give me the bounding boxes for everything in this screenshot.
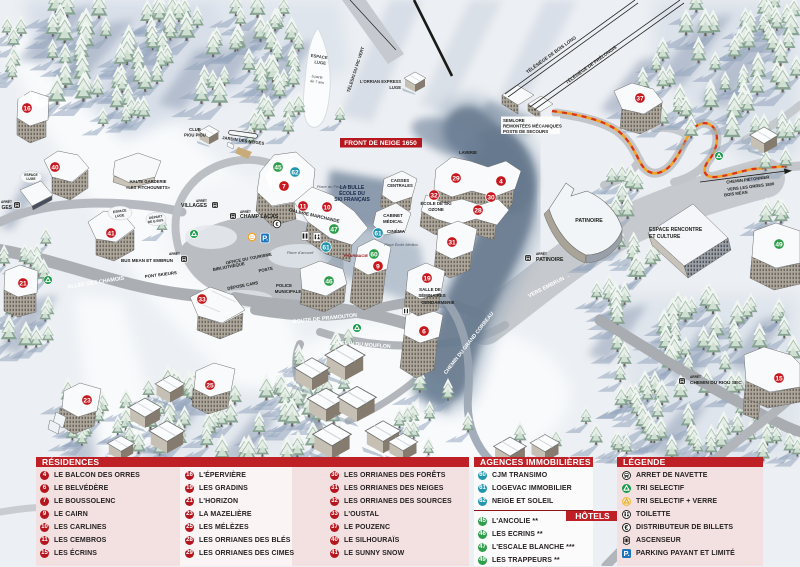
svg-text:MÉDICAL: MÉDICAL [383, 219, 403, 224]
svg-text:37: 37 [636, 95, 644, 102]
svg-text:HALTE GARDERIE: HALTE GARDERIE [130, 179, 167, 184]
svg-text:45: 45 [274, 164, 282, 171]
svg-text:30: 30 [487, 194, 495, 201]
svg-text:33: 33 [198, 296, 206, 303]
svg-text:62: 62 [291, 169, 299, 176]
svg-text:P.: P. [624, 549, 630, 558]
svg-text:€: € [276, 222, 279, 228]
svg-text:31: 31 [448, 239, 456, 246]
svg-text:REMONTÉES MÉCANIQUES: REMONTÉES MÉCANIQUES [503, 124, 562, 129]
svg-text:49: 49 [775, 241, 783, 248]
svg-text:21: 21 [19, 280, 27, 287]
svg-text:29: 29 [452, 175, 460, 182]
svg-text:23: 23 [83, 397, 91, 404]
svg-text:GES: GES [1, 205, 12, 211]
svg-text:60: 60 [370, 251, 378, 258]
svg-text:ARRÊT: ARRÊT [536, 251, 547, 256]
svg-text:25: 25 [206, 382, 214, 389]
svg-text:ESPACE RENCONTRE: ESPACE RENCONTRE [649, 227, 703, 233]
svg-text:CHAMP LACAS: CHAMP LACAS [240, 214, 279, 220]
svg-text:LUGE: LUGE [389, 85, 401, 90]
svg-text:SALLE DE: SALLE DE [419, 287, 441, 292]
svg-text:CHEMIN DU RIOU SEC: CHEMIN DU RIOU SEC [690, 380, 742, 386]
svg-text:15: 15 [775, 375, 783, 382]
svg-text:Place du Festival: Place du Festival [317, 184, 348, 189]
svg-text:PHARMACIE: PHARMACIE [344, 253, 369, 258]
svg-text:ARRÊT: ARRÊT [1, 199, 12, 204]
svg-text:19: 19 [423, 275, 431, 282]
svg-text:L'ORRIAN EXPRESS: L'ORRIAN EXPRESS [360, 79, 401, 84]
svg-text:€: € [625, 525, 629, 532]
svg-text:POLICE: POLICE [276, 283, 292, 288]
svg-text:BUS MEAN ET EMBRUN: BUS MEAN ET EMBRUN [121, 258, 173, 263]
svg-text:61: 61 [374, 230, 382, 237]
svg-text:VILLAGES: VILLAGES [181, 203, 207, 209]
svg-text:PATINOIRE: PATINOIRE [575, 218, 603, 224]
svg-text:PIOU PIOU: PIOU PIOU [184, 133, 206, 138]
svg-text:«LES PITCHOUNETS»: «LES PITCHOUNETS» [126, 185, 171, 190]
svg-text:CINÉMA: CINÉMA [387, 227, 406, 234]
svg-text:7: 7 [282, 183, 286, 190]
svg-text:47: 47 [330, 226, 338, 233]
svg-text:40: 40 [51, 164, 59, 171]
svg-text:41: 41 [107, 230, 115, 237]
svg-text:CENTRALES: CENTRALES [387, 183, 413, 188]
svg-text:MUNICIPALE: MUNICIPALE [275, 289, 302, 294]
svg-text:FRONT DE NEIGE 1650: FRONT DE NEIGE 1650 [344, 140, 417, 147]
svg-text:SKI FRANÇAIS: SKI FRANÇAIS [334, 197, 370, 203]
svg-text:ÉCOLE DU: ÉCOLE DU [339, 189, 365, 197]
svg-text:6: 6 [422, 328, 426, 335]
svg-text:CLUB: CLUB [189, 127, 201, 132]
svg-text:28: 28 [474, 207, 482, 214]
svg-text:10: 10 [323, 204, 331, 211]
svg-text:P.: P. [262, 234, 268, 243]
svg-text:46: 46 [325, 278, 333, 285]
svg-text:SÉMINAIRES: SÉMINAIRES [418, 293, 445, 298]
svg-text:ARRÊT: ARRÊT [690, 374, 701, 379]
svg-text:CABINET: CABINET [383, 213, 403, 218]
svg-text:ET CULTURE: ET CULTURE [649, 234, 681, 240]
svg-text:PATINOIRE: PATINOIRE [536, 257, 564, 263]
svg-text:LUGE: LUGE [26, 177, 36, 181]
svg-text:Place Émile Mediou: Place Émile Mediou [384, 242, 418, 247]
svg-text:POSTE DE SECOURS: POSTE DE SECOURS [503, 129, 548, 134]
svg-text:16: 16 [23, 105, 31, 112]
svg-text:32: 32 [430, 192, 438, 199]
svg-text:9: 9 [376, 263, 380, 270]
svg-text:61: 61 [322, 244, 330, 251]
svg-text:OZONE: OZONE [428, 207, 444, 212]
svg-text:11: 11 [300, 203, 307, 210]
svg-text:LAVERIE: LAVERIE [459, 150, 477, 155]
svg-text:SEMLORE: SEMLORE [503, 118, 525, 123]
svg-text:Place d'accueil: Place d'accueil [287, 250, 314, 255]
svg-text:4: 4 [499, 178, 503, 185]
svg-text:GENDARMERIE: GENDARMERIE [422, 300, 455, 305]
svg-text:ARRÊT: ARRÊT [169, 251, 180, 256]
svg-text:ÉCOLE DE SKI: ÉCOLE DE SKI [421, 201, 452, 206]
